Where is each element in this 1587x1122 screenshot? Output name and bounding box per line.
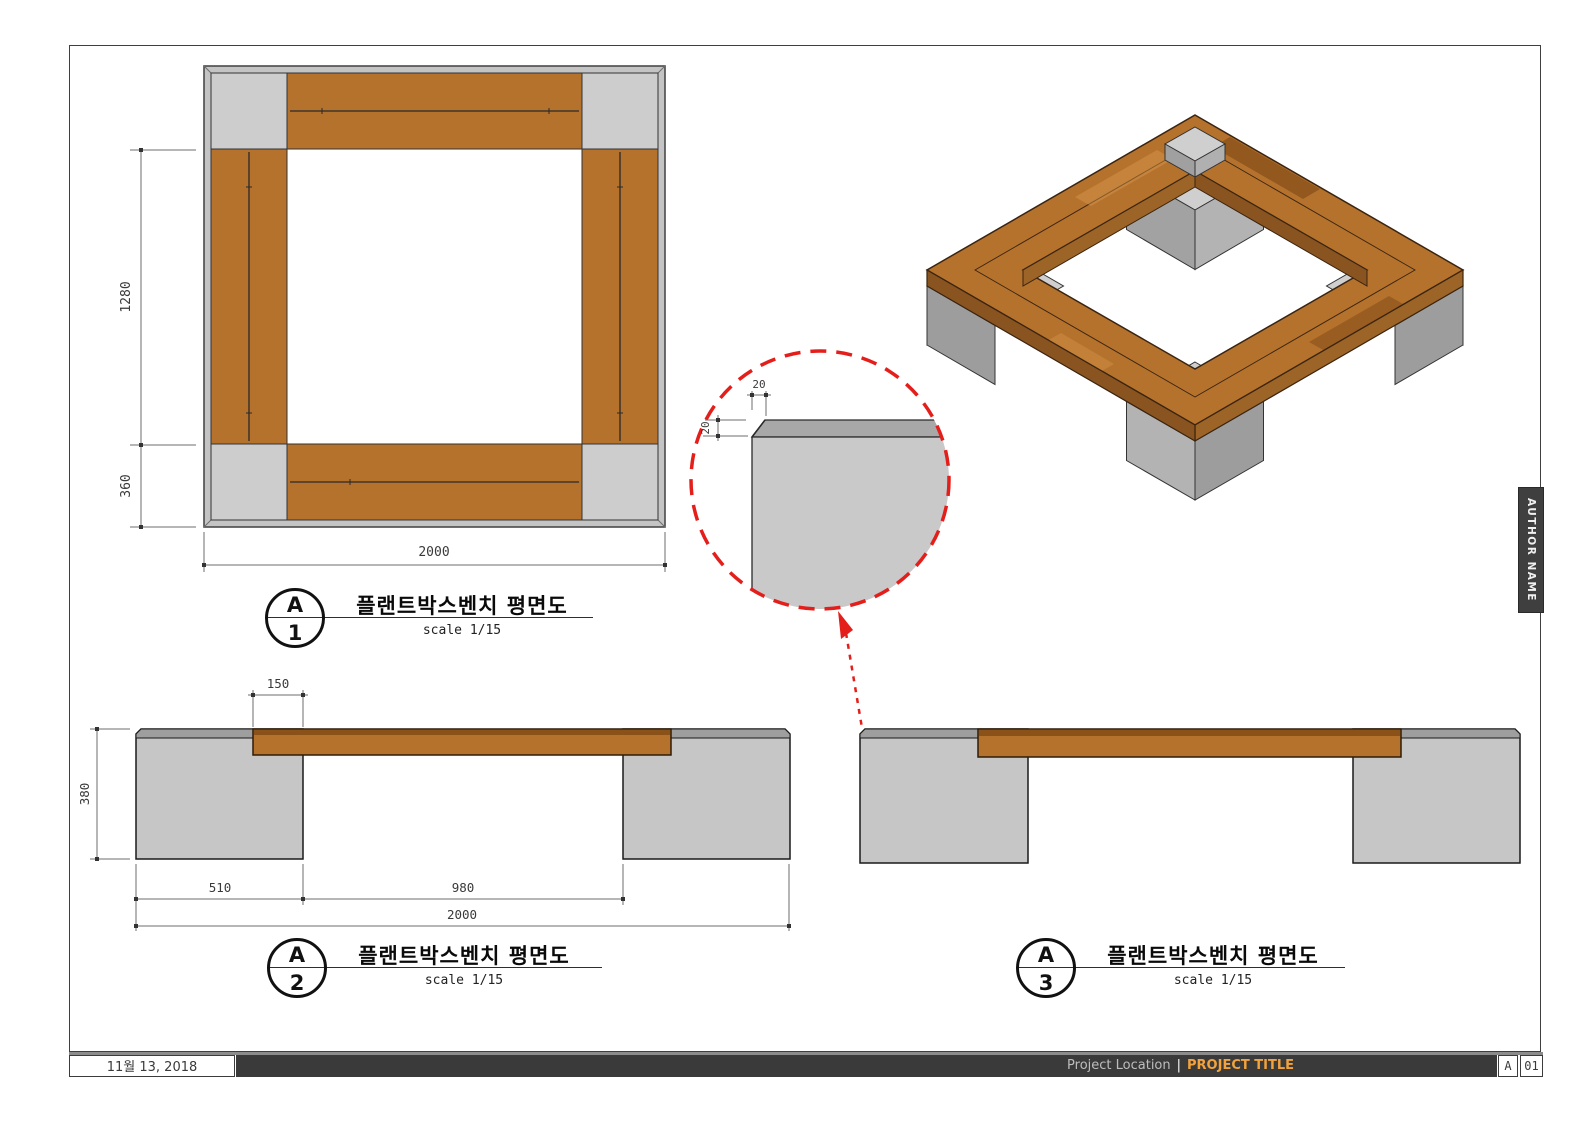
sheet-letter: A [1504, 1059, 1511, 1073]
drawing-canvas: 1280 360 2000 [0, 0, 1587, 1122]
view-title: 플랜트박스벤치 평면도 [333, 940, 595, 970]
sheet-number-box: 01 [1520, 1055, 1543, 1077]
view-title: 플랜트박스벤치 평면도 [1082, 940, 1344, 970]
sheet-number: 01 [1524, 1059, 1538, 1073]
author-name-tab: AUTHOR NAME [1518, 487, 1544, 613]
date-box: 11월 13, 2018 [69, 1055, 235, 1077]
project-bar: Project Location|PROJECT TITLE [236, 1055, 1497, 1077]
plan-dim-left [130, 150, 196, 527]
viewtitle-bubble: A 1 [265, 588, 325, 648]
author-name-text: AUTHOR NAME [1525, 498, 1537, 602]
project-title: PROJECT TITLE [1187, 1058, 1294, 1073]
viewtitle-plan: A 1 플랜트박스벤치 평면도 scale 1/15 [265, 588, 595, 654]
view-letter: A [268, 593, 322, 617]
detail-view: 20 20 [691, 351, 951, 728]
dim-front-total: 2000 [447, 907, 477, 922]
plan-corner-block [582, 444, 658, 520]
title-bar: 11월 13, 2018 Project Location|PROJECT TI… [69, 1052, 1543, 1078]
front-elevation: 150 380 510 980 2000 [77, 676, 791, 931]
plan-opening [287, 149, 582, 444]
project-text: Project Location|PROJECT TITLE [1067, 1058, 1294, 1073]
view-scale: scale 1/15 [1082, 973, 1344, 988]
view-scale: scale 1/15 [331, 623, 593, 638]
view-title: 플랜트박스벤치 평면도 [331, 590, 593, 620]
dim-front-height: 380 [77, 783, 92, 806]
viewtitle-side: A 3 플랜트박스벤치 평면도 scale 1/15 [1016, 938, 1346, 1004]
detail-leader-arrow [838, 611, 853, 639]
viewtitle-bubble: A 2 [267, 938, 327, 998]
plan-view: 1280 360 2000 [119, 66, 667, 572]
dim-plan-total: 2000 [418, 545, 449, 560]
dim-detail-chamfer-width: 20 [752, 378, 765, 391]
dim-front-overlap: 150 [267, 676, 290, 691]
dim-plan-corner: 360 [119, 474, 134, 497]
dim-front-block: 510 [209, 880, 232, 895]
dim-plan-inner-height: 1280 [119, 281, 134, 312]
view-number: 1 [268, 621, 322, 645]
sheet-letter-box: A [1498, 1055, 1518, 1077]
view-number: 3 [1019, 971, 1073, 995]
side-elevation [860, 729, 1520, 863]
view-letter: A [270, 943, 324, 967]
plan-corner-block [211, 73, 287, 149]
viewtitle-front: A 2 플랜트박스벤치 평면도 scale 1/15 [267, 938, 603, 1004]
plan-corner-block [211, 444, 287, 520]
plan-corner-block [582, 73, 658, 149]
dim-detail-chamfer-height: 20 [699, 421, 712, 434]
project-location: Project Location [1067, 1058, 1171, 1073]
view-letter: A [1019, 943, 1073, 967]
view-number: 2 [270, 971, 324, 995]
detail-leader-line [846, 633, 862, 728]
project-divider: | [1171, 1058, 1187, 1073]
date-text: 11월 13, 2018 [107, 1056, 198, 1075]
view-scale: scale 1/15 [333, 973, 595, 988]
iso-view [927, 115, 1463, 500]
viewtitle-bubble: A 3 [1016, 938, 1076, 998]
dim-front-span: 980 [452, 880, 475, 895]
